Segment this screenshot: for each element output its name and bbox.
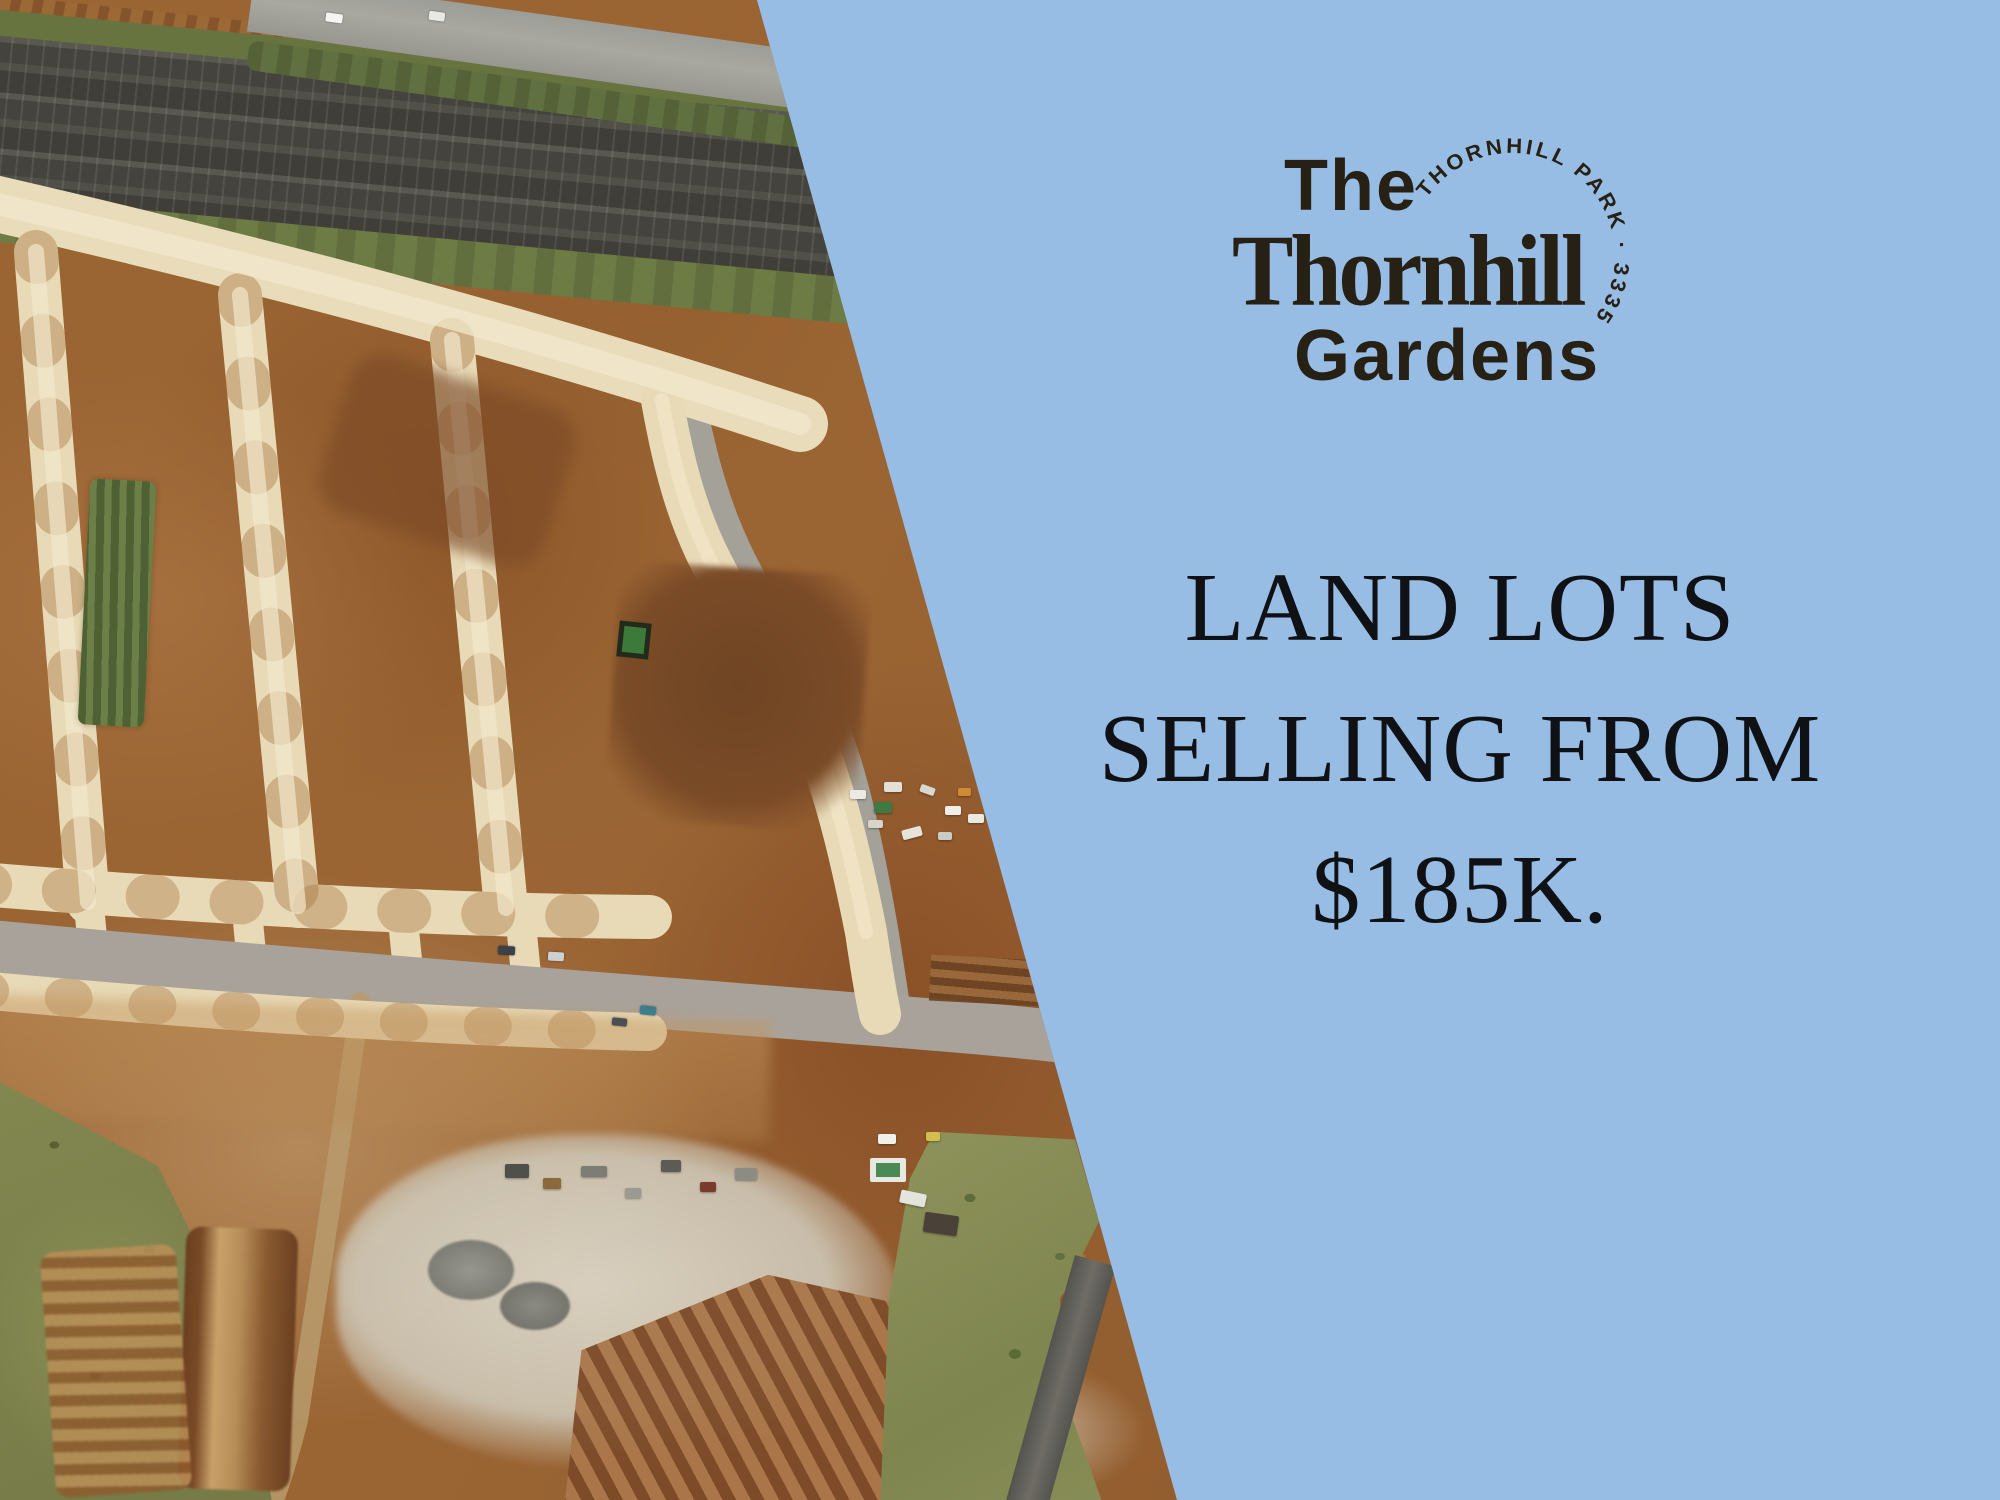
estate-sign-board	[616, 620, 652, 659]
object-speck	[661, 1160, 681, 1172]
object-speck	[581, 1166, 607, 1177]
construction-vehicle-cluster	[850, 780, 1000, 875]
excavated-trench	[177, 1226, 298, 1492]
car-speck	[548, 952, 564, 962]
dark-stockpile-speck	[923, 1212, 959, 1237]
truck-speck	[938, 832, 952, 840]
dark-soil-block	[603, 560, 872, 835]
grey-stockpile	[428, 1240, 514, 1300]
headline-line-2: SELLING FROM	[1010, 679, 1910, 820]
stockpile-stripes-left	[40, 1244, 193, 1499]
crop-rows-patch	[78, 478, 157, 727]
machine-speck	[926, 1132, 940, 1141]
promo-banner: The Thornhill Gardens THORNHILL PARK · 3…	[0, 0, 2000, 1500]
construction-materials-cluster	[495, 1148, 785, 1248]
object-speck	[735, 1168, 757, 1180]
logo-badge-arc: THORNHILL PARK · 3335	[1360, 100, 1680, 380]
object-speck	[543, 1178, 561, 1189]
truck-speck	[968, 814, 984, 823]
car-speck	[498, 946, 515, 956]
truck-speck	[868, 820, 883, 828]
object-speck	[700, 1182, 716, 1192]
excavator-speck	[874, 802, 892, 813]
truck-speck	[945, 806, 961, 815]
truck-speck	[901, 826, 923, 841]
svg-text:THORNHILL PARK · 3335: THORNHILL PARK · 3335	[1412, 135, 1633, 330]
site-shed	[870, 1158, 906, 1182]
dirt-windrows-right	[929, 955, 1063, 1008]
car-speck	[640, 1005, 657, 1016]
headline-line-1: LAND LOTS	[1010, 538, 1910, 679]
object-speck	[625, 1188, 641, 1198]
car-speck	[878, 1134, 896, 1144]
truck-speck	[884, 782, 902, 792]
headline: LAND LOTS SELLING FROM $185K.	[1010, 538, 1910, 961]
truck-speck	[919, 784, 936, 797]
headline-line-3: $185K.	[1010, 820, 1910, 961]
site-compound-cluster	[870, 1130, 990, 1240]
grey-stockpile	[500, 1282, 570, 1330]
truck-speck	[850, 790, 866, 799]
logo-badge-arc-text: THORNHILL PARK · 3335	[1412, 135, 1633, 330]
car-speck	[612, 1017, 628, 1027]
object-speck	[505, 1164, 529, 1178]
machine-speck	[958, 788, 971, 796]
truck-speck	[899, 1189, 927, 1207]
